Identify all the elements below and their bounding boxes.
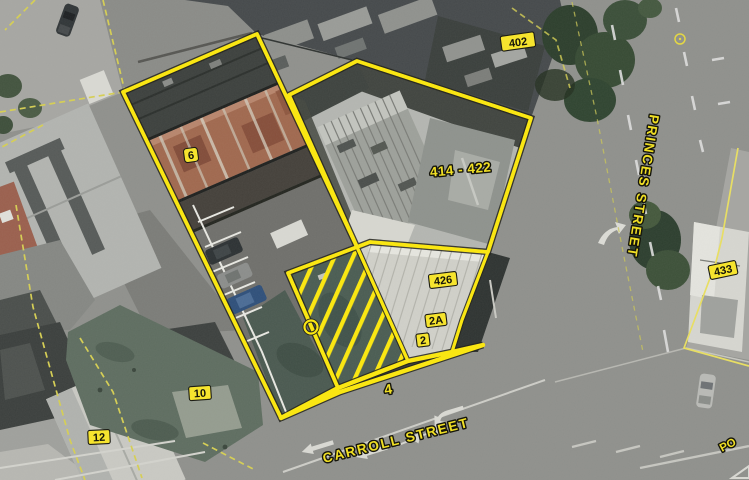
aerial-map[interactable]: PRINCES STREET CARROLL STREET PO 414 - 4… — [0, 0, 749, 480]
parcel-label-6: 6 — [183, 147, 199, 163]
map-canvas[interactable]: PRINCES STREET CARROLL STREET PO 414 - 4… — [0, 0, 749, 480]
svg-text:402: 402 — [508, 36, 528, 50]
parcel-label-426: 426 — [428, 271, 457, 288]
svg-text:10: 10 — [194, 388, 207, 401]
parcel-label-10: 10 — [189, 385, 212, 401]
parcel-label-2a: 2A — [425, 312, 447, 328]
svg-text:12: 12 — [93, 432, 106, 445]
parcel-label-12: 12 — [88, 429, 111, 444]
svg-text:2A: 2A — [428, 314, 443, 328]
svg-text:426: 426 — [433, 274, 453, 288]
parcel-label-2: 2 — [416, 333, 431, 348]
